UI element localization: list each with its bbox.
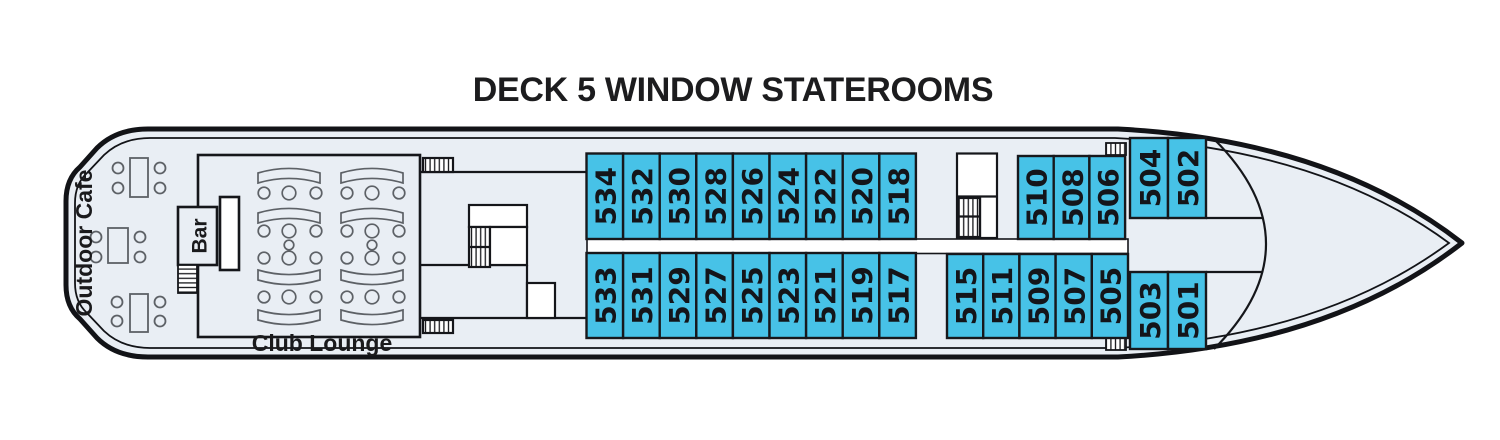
stateroom-number: 510 [1021,168,1054,226]
stateroom-508[interactable]: 508 [1054,156,1090,239]
bar-label: Bar [188,218,211,253]
stateroom-527[interactable]: 527 [696,253,733,338]
stateroom-531[interactable]: 531 [623,253,660,338]
stateroom-number: 523 [773,266,806,324]
stateroom-number: 518 [882,167,915,225]
stateroom-number: 528 [699,167,732,225]
stateroom-number: 509 [1022,267,1055,325]
stateroom-number: 507 [1059,267,1092,325]
stateroom-number: 515 [950,267,983,325]
stairs-lounge-top [423,158,453,172]
stateroom-number: 530 [663,167,696,225]
stateroom-number: 521 [809,266,842,324]
stateroom-515[interactable]: 515 [947,254,983,338]
stateroom-number: 526 [736,167,769,225]
bar-counter [220,197,239,270]
stateroom-503[interactable]: 503 [1130,272,1168,349]
stateroom-number: 532 [626,167,659,225]
stateroom-518[interactable]: 518 [879,154,916,240]
stateroom-519[interactable]: 519 [843,253,880,338]
stateroom-506[interactable]: 506 [1089,156,1125,239]
stateroom-number: 534 [590,167,623,225]
stateroom-521[interactable]: 521 [806,253,843,338]
stateroom-number: 531 [626,266,659,324]
stateroom-532[interactable]: 532 [623,154,660,240]
stateroom-505[interactable]: 505 [1092,254,1128,338]
stateroom-509[interactable]: 509 [1019,254,1055,338]
club-lounge-label: Club Lounge [252,330,393,356]
stairs-bow-top [1106,143,1126,155]
stateroom-number: 522 [809,167,842,225]
stateroom-520[interactable]: 520 [843,154,880,240]
stateroom-502[interactable]: 502 [1168,138,1206,218]
stateroom-517[interactable]: 517 [879,253,916,338]
stateroom-522[interactable]: 522 [806,154,843,240]
stateroom-524[interactable]: 524 [770,154,807,240]
outdoor-cafe-label: Outdoor Cafe [71,170,97,317]
stateroom-530[interactable]: 530 [660,154,697,240]
stateroom-number: 525 [736,266,769,324]
stateroom-number: 527 [699,266,732,324]
stateroom-523[interactable]: 523 [770,253,807,338]
stateroom-number: 524 [773,167,806,225]
stateroom-number: 511 [986,267,1019,325]
stateroom-number: 504 [1134,149,1167,207]
stateroom-510[interactable]: 510 [1018,156,1054,239]
deck-title: DECK 5 WINDOW STATEROOMS [473,71,993,109]
stateroom-number: 501 [1172,281,1205,339]
stateroom-number: 505 [1095,267,1128,325]
stateroom-number: 519 [846,266,879,324]
stateroom-501[interactable]: 501 [1168,272,1206,349]
stateroom-number: 503 [1134,281,1167,339]
stateroom-507[interactable]: 507 [1056,254,1092,338]
stateroom-526[interactable]: 526 [733,154,770,240]
stateroom-533[interactable]: 533 [587,253,624,338]
corridor [587,239,1128,254]
forward-stairwell [957,154,997,239]
deck-plan-drawing: Bar 534532530528526524522520518510508506… [0,0,1500,440]
stateroom-number: 520 [846,167,879,225]
stateroom-number: 529 [663,266,696,324]
stairs-lounge-bottom [423,320,453,333]
stateroom-number: 508 [1056,168,1089,226]
stateroom-number: 533 [590,266,623,324]
stateroom-number: 506 [1092,168,1125,226]
stairs-bar [178,265,197,293]
stateroom-534[interactable]: 534 [587,154,624,240]
stateroom-number: 517 [882,266,915,324]
stateroom-511[interactable]: 511 [983,254,1019,338]
stateroom-528[interactable]: 528 [696,154,733,240]
stairs-bow-bottom [1106,338,1126,350]
deck-plan: Bar 534532530528526524522520518510508506… [0,0,1500,440]
stateroom-504[interactable]: 504 [1130,138,1168,218]
stateroom-525[interactable]: 525 [733,253,770,338]
stateroom-number: 502 [1172,149,1205,207]
stateroom-529[interactable]: 529 [660,253,697,338]
